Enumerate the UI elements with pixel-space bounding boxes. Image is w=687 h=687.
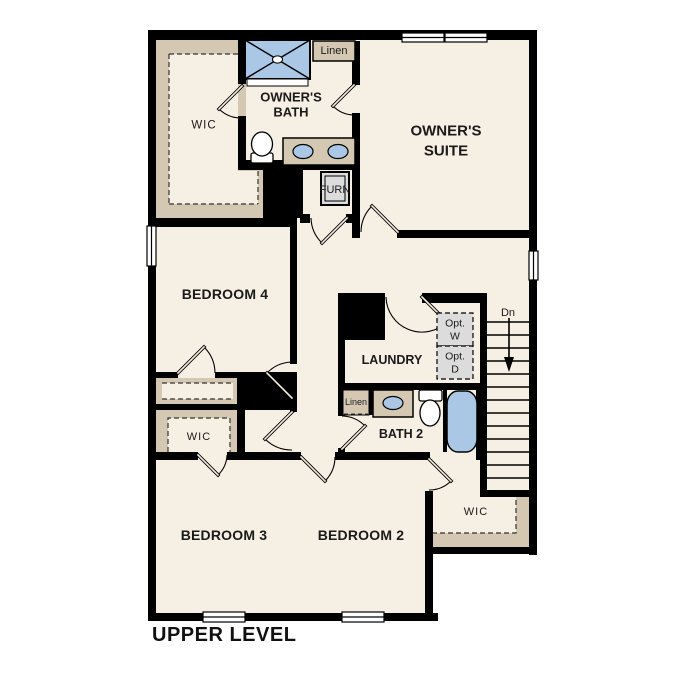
label-optional-washer: Opt. W xyxy=(445,317,465,342)
room-label-bedroom-2: BEDROOM 2 xyxy=(318,528,405,544)
floor-plan: OWNER'S BATH OWNER'S SUITE WIC Linen FUR… xyxy=(0,0,687,687)
vanity-sink-icon xyxy=(373,390,413,417)
room-label-owners-wic: WIC xyxy=(191,120,216,133)
room-label-bedroom-3: BEDROOM 3 xyxy=(181,528,268,544)
shower-icon xyxy=(245,40,310,86)
label-stairs-down: Dn xyxy=(501,307,515,319)
vanity-double-sink-icon xyxy=(283,138,355,165)
plan-title: UPPER LEVEL xyxy=(152,624,296,647)
room-label-wic-bedroom-2: WIC xyxy=(464,506,488,518)
floor-plan-drawing xyxy=(0,0,687,687)
room-label-owners-bath: OWNER'S BATH xyxy=(260,90,322,119)
window-icon xyxy=(147,226,156,266)
room-label-wic-bedroom-3: WIC xyxy=(187,431,211,443)
toilet-icon xyxy=(251,132,273,163)
window-icon xyxy=(529,251,538,280)
room-label-bedroom-4: BEDROOM 4 xyxy=(182,287,269,303)
window-icon xyxy=(445,33,487,42)
toilet-icon xyxy=(419,390,442,426)
window-icon xyxy=(402,33,444,42)
bathtub-icon xyxy=(447,391,477,452)
label-optional-dryer: Opt. D xyxy=(445,350,465,375)
room-label-owners-suite: OWNER'S SUITE xyxy=(410,122,481,161)
room-label-linen-upper: Linen xyxy=(321,45,348,57)
window-icon xyxy=(342,612,384,622)
window-icon xyxy=(203,612,245,622)
room-label-laundry: LAUNDRY xyxy=(362,353,423,367)
room-label-bath-2: BATH 2 xyxy=(379,427,423,441)
room-label-furnace: FURN xyxy=(320,184,351,196)
room-label-linen-bath-2: Linen xyxy=(345,397,367,407)
